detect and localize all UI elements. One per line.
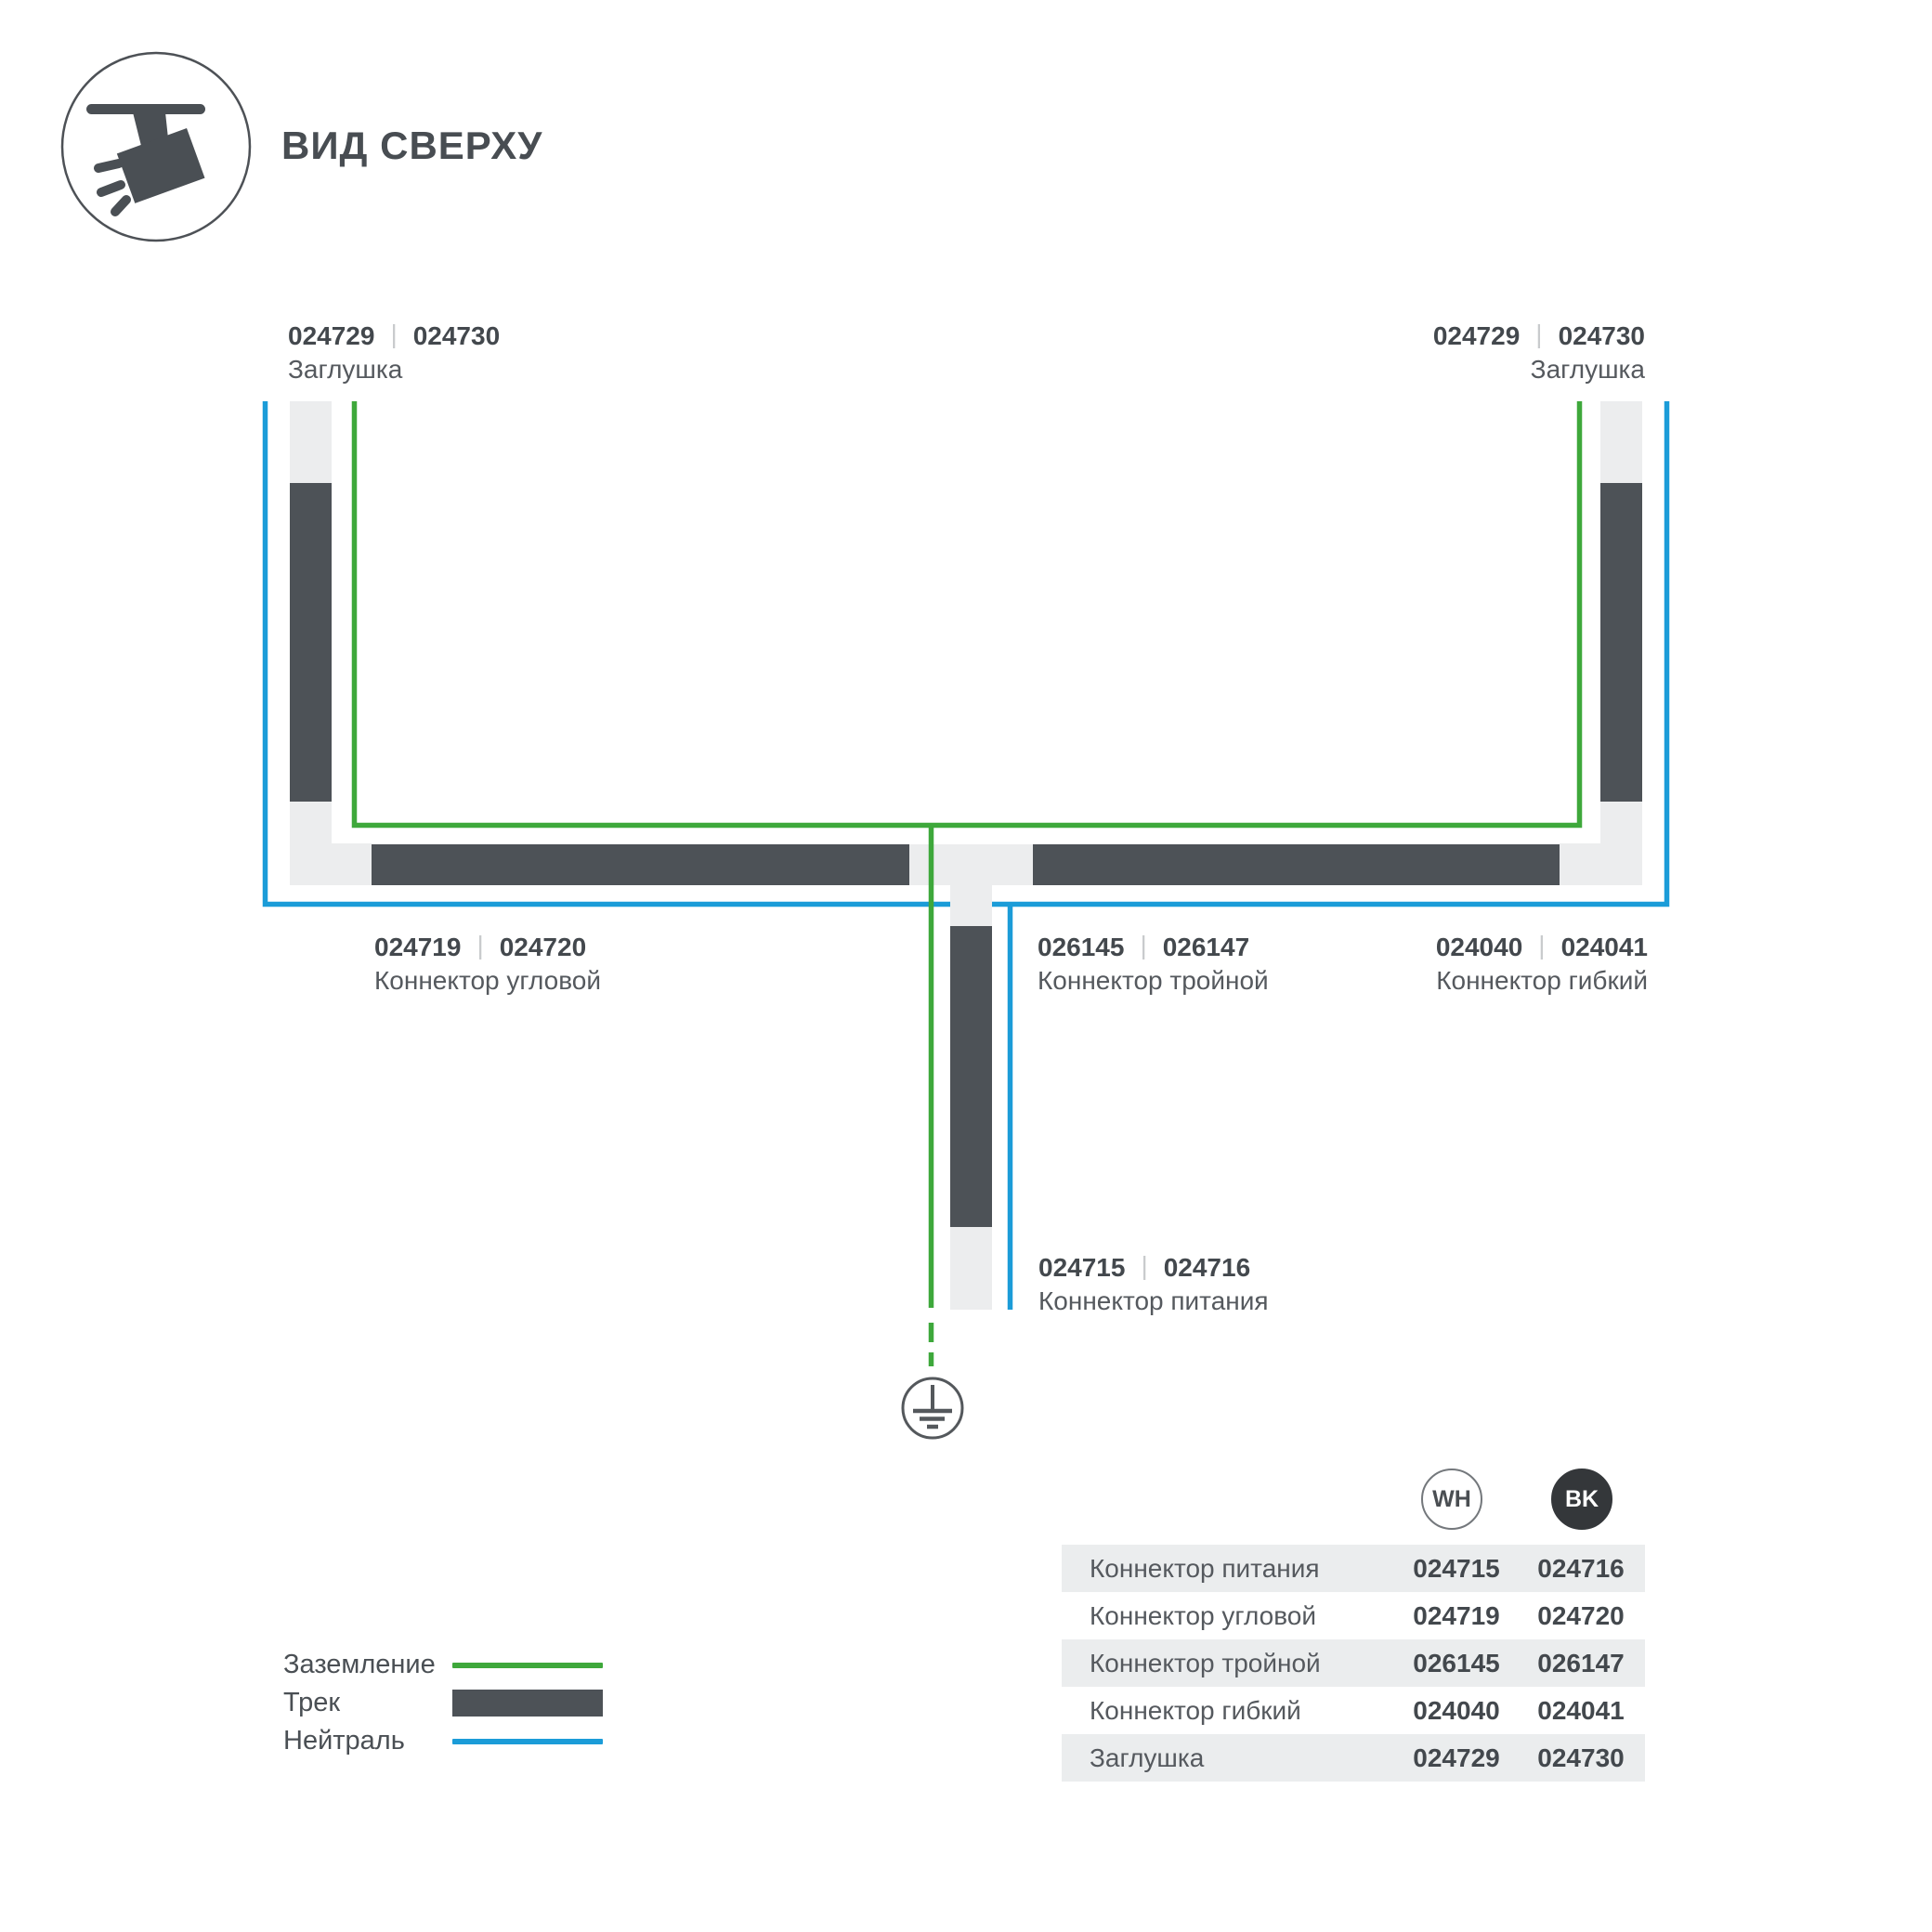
- row-code-wh: 024040: [1396, 1696, 1517, 1726]
- row-name: Коннектор угловой: [1062, 1601, 1396, 1631]
- row-code-wh: 024719: [1396, 1601, 1517, 1631]
- table-row: Заглушка 024729 024730: [1062, 1734, 1645, 1782]
- row-name: Коннектор тройной: [1062, 1649, 1396, 1678]
- table-row: Коннектор угловой 024719 024720: [1062, 1592, 1645, 1639]
- part-codes: 024715|024716: [1038, 1251, 1269, 1285]
- part-name: Коннектор питания: [1038, 1285, 1269, 1318]
- row-code-bk: 024041: [1517, 1696, 1645, 1726]
- track-vertical-stem: [950, 926, 992, 1227]
- track-vertical-left: [290, 483, 332, 802]
- row-code-bk: 026147: [1517, 1649, 1645, 1678]
- label-endcap-left: 024729|024730 Заглушка: [288, 320, 500, 386]
- neutral-line-swatch: [452, 1739, 603, 1744]
- row-code-wh: 024729: [1396, 1743, 1517, 1773]
- part-name: Коннектор тройной: [1038, 964, 1269, 998]
- label-power-connector: 024715|024716 Коннектор питания: [1038, 1251, 1269, 1318]
- row-code-wh: 026145: [1396, 1649, 1517, 1678]
- label-corner-connector: 024719|024720 Коннектор угловой: [374, 931, 601, 998]
- row-name: Коннектор гибкий: [1062, 1696, 1396, 1726]
- label-flexible-connector: 024040|024041 Коннектор гибкий: [1436, 931, 1648, 998]
- table-row: Коннектор питания 024715 024716: [1062, 1545, 1645, 1592]
- color-badge-black: BK: [1551, 1469, 1612, 1530]
- track-horizontal-right: [1033, 844, 1560, 885]
- corner-connector-right: [1560, 802, 1642, 885]
- legend-label: Трек: [283, 1688, 452, 1718]
- label-triple-connector: 026145|026147 Коннектор тройной: [1038, 931, 1269, 998]
- part-codes: 024729|024730: [288, 320, 500, 353]
- legend-item-ground: Заземление: [283, 1646, 603, 1684]
- code-divider: |: [1141, 1251, 1147, 1280]
- legend-item-neutral: Нейтраль: [283, 1722, 603, 1760]
- row-name: Коннектор питания: [1062, 1554, 1396, 1584]
- label-endcap-right: 024729|024730 Заглушка: [1433, 320, 1645, 386]
- ground-line-swatch: [452, 1663, 603, 1668]
- earth-ground-symbol: [903, 1378, 962, 1438]
- page: ВИД СВЕРХУ: [0, 0, 1932, 1932]
- endcap-right: [1600, 401, 1642, 483]
- part-codes: 024729|024730: [1433, 320, 1645, 353]
- code-divider: |: [476, 931, 483, 959]
- parts-table: WH BK Коннектор питания 024715 024716 Ко…: [1062, 1469, 1645, 1782]
- track-horizontal-left: [372, 844, 909, 885]
- color-badge-white: WH: [1421, 1469, 1482, 1530]
- code-divider: |: [1140, 931, 1146, 959]
- table-body: Коннектор питания 024715 024716 Коннекто…: [1062, 1545, 1645, 1782]
- track-vertical-right: [1600, 483, 1642, 802]
- ground-wire: [355, 401, 1580, 826]
- part-name: Коннектор угловой: [374, 964, 601, 998]
- power-connector: [950, 1227, 992, 1310]
- part-name: Заглушка: [1433, 353, 1645, 386]
- track-bar-swatch: [452, 1690, 603, 1717]
- legend-label: Нейтраль: [283, 1726, 452, 1756]
- table-row: Коннектор гибкий 024040 024041: [1062, 1687, 1645, 1734]
- endcap-left: [290, 401, 332, 483]
- row-code-wh: 024715: [1396, 1554, 1517, 1584]
- legend: Заземление Трек Нейтраль: [283, 1646, 603, 1760]
- code-divider: |: [1538, 931, 1545, 959]
- part-name: Заглушка: [288, 353, 500, 386]
- part-codes: 024719|024720: [374, 931, 601, 964]
- legend-label: Заземление: [283, 1650, 452, 1680]
- row-code-bk: 024720: [1517, 1601, 1645, 1631]
- code-divider: |: [390, 320, 397, 348]
- row-code-bk: 024730: [1517, 1743, 1645, 1773]
- part-codes: 026145|026147: [1038, 931, 1269, 964]
- table-header: WH BK: [1062, 1469, 1645, 1530]
- triple-connector: [909, 844, 1033, 926]
- table-row: Коннектор тройной 026145 026147: [1062, 1639, 1645, 1687]
- part-name: Коннектор гибкий: [1436, 964, 1648, 998]
- legend-item-track: Трек: [283, 1684, 603, 1722]
- part-codes: 024040|024041: [1436, 931, 1648, 964]
- neutral-wire: [266, 401, 1667, 905]
- code-divider: |: [1535, 320, 1542, 348]
- row-name: Заглушка: [1062, 1743, 1396, 1773]
- row-code-bk: 024716: [1517, 1554, 1645, 1584]
- corner-connector-left: [290, 802, 372, 885]
